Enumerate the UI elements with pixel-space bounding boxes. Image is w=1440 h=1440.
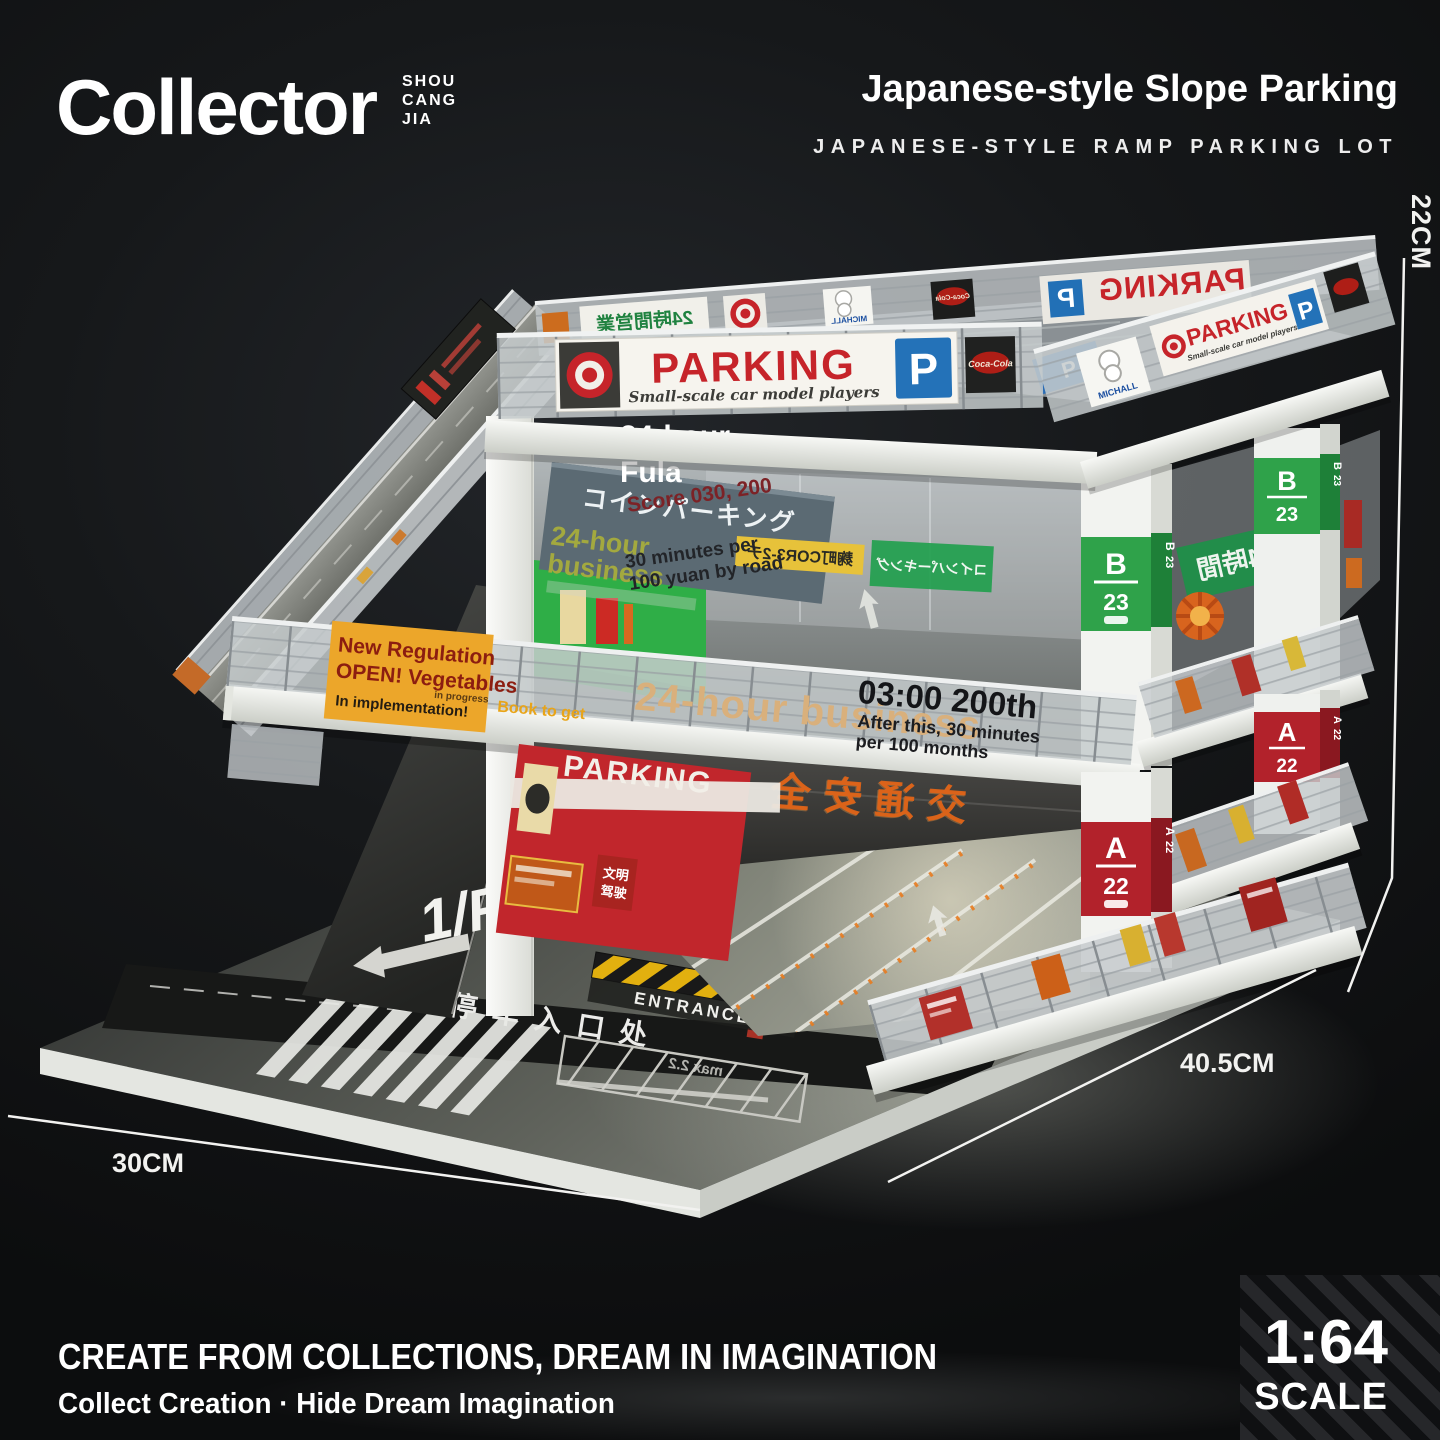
main-parking-sign: PARKING Small-scale car model players P xyxy=(555,331,958,411)
svg-text:22: 22 xyxy=(1103,873,1129,899)
svg-text:A: A xyxy=(1163,827,1177,836)
footer-tagline-sub: Collect Creation · Hide Dream Imaginatio… xyxy=(58,1388,615,1421)
green-mirrored-sign: コインパーキング xyxy=(870,540,994,592)
billboard-michelin-mirrored: MICHALL xyxy=(823,286,874,328)
svg-text:B: B xyxy=(1163,542,1177,551)
svg-text:P: P xyxy=(908,345,938,395)
svg-text:驾驶: 驾驶 xyxy=(600,883,628,901)
car-icon xyxy=(1104,900,1128,908)
roof-front-railing: PARKING Small-scale car model players P … xyxy=(497,322,1044,419)
orange-notice-sign xyxy=(505,856,582,912)
svg-text:B: B xyxy=(1277,466,1297,496)
svg-text:B: B xyxy=(1331,462,1343,470)
svg-text:A: A xyxy=(1278,717,1297,747)
sunburst-sign xyxy=(1176,592,1224,640)
svg-text:A: A xyxy=(1105,832,1127,865)
scale-label: SCALE xyxy=(1254,1378,1388,1416)
svg-text:23: 23 xyxy=(1276,504,1298,526)
brand-sub-line: SHOU xyxy=(402,72,457,91)
mid-left-mini-railing xyxy=(227,724,323,786)
depth-dimension-label: 40.5CM xyxy=(1180,1048,1275,1078)
brand-logo: Collector xyxy=(56,62,376,153)
wall-poster xyxy=(624,604,633,644)
product-subtitle: JAPANESE-STYLE RAMP PARKING LOT xyxy=(813,136,1398,159)
product-title: Japanese-style Slope Parking xyxy=(862,68,1398,111)
model-illustration: 停车入口处 ENTRANCE IN xyxy=(0,0,1440,1440)
svg-text:23: 23 xyxy=(1163,556,1175,568)
svg-text:文明: 文明 xyxy=(602,865,630,883)
width-dimension-label: 30CM xyxy=(112,1148,184,1178)
svg-text:22: 22 xyxy=(1331,729,1342,741)
cola-sign-front: Coca-Cola xyxy=(965,336,1016,393)
svg-text:22: 22 xyxy=(1276,756,1297,777)
brand-sub-line: CANG xyxy=(402,91,457,110)
brand-logo-sub: SHOU CANG JIA xyxy=(402,72,457,130)
scale-ratio: 1:64 xyxy=(1264,1312,1388,1374)
height-dimension-label: 22CM xyxy=(1406,194,1436,270)
wall-poster xyxy=(560,590,586,644)
poster-canvas: 停车入口处 ENTRANCE IN xyxy=(0,0,1440,1440)
svg-text:Coca-Cola: Coca-Cola xyxy=(968,358,1013,369)
car-icon xyxy=(1104,616,1128,624)
brand-sub-line: JIA xyxy=(402,110,457,129)
billboard-cola-mirrored: Coca-Cola xyxy=(930,279,975,320)
footer-tagline-en: CREATE FROM COLLECTIONS, DREAM IN IMAGIN… xyxy=(58,1336,937,1378)
red-mini-sign: 文明 驾驶 xyxy=(592,854,638,910)
svg-text:23: 23 xyxy=(1331,475,1342,487)
wall-poster xyxy=(596,598,618,644)
svg-text:23: 23 xyxy=(1103,589,1129,615)
svg-text:B: B xyxy=(1105,548,1127,581)
svg-text:22: 22 xyxy=(1163,841,1175,853)
svg-text:A: A xyxy=(1331,716,1343,724)
svg-text:P: P xyxy=(1056,283,1076,314)
